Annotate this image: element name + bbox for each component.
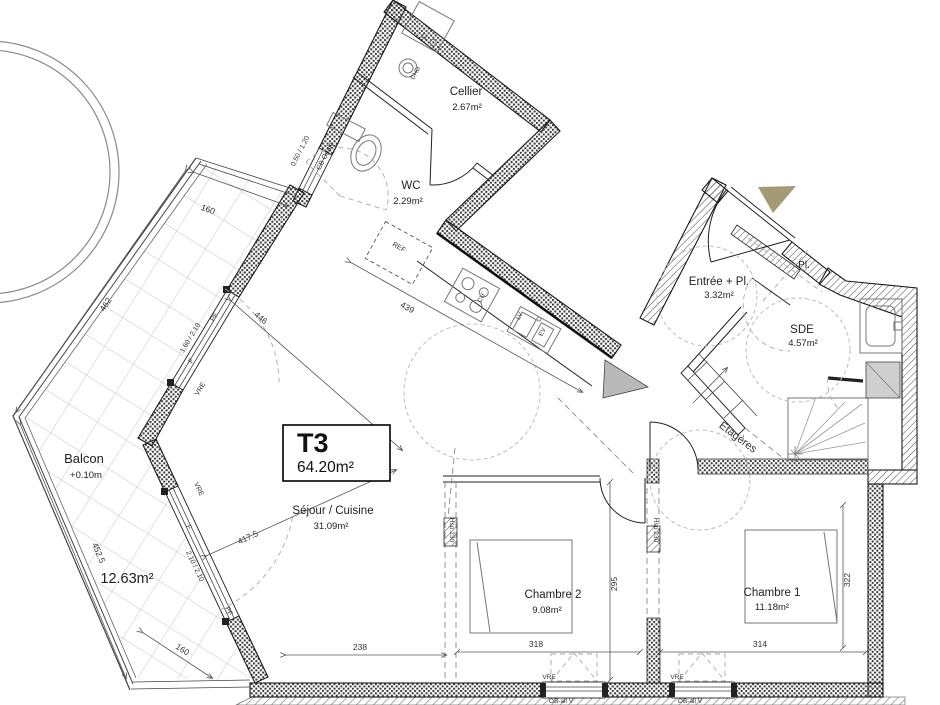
entrance-arrow bbox=[758, 186, 796, 213]
room-level-balcon: +0.10m bbox=[70, 470, 102, 481]
label-boiler: CHD bbox=[409, 65, 422, 81]
dim-sejour-sw: 417.5 bbox=[236, 528, 260, 546]
dim-chambre1-depth: 322 bbox=[842, 573, 852, 587]
label-fridge: REF bbox=[391, 241, 407, 254]
room-area-sde: 4.57m² bbox=[788, 338, 818, 349]
label-ch2-window: OB-all V bbox=[549, 698, 574, 705]
unit-label-box: T3 64.20m² bbox=[283, 425, 390, 481]
room-label-entree: Entrée + Pl. bbox=[689, 276, 749, 288]
label-sw-window-shutter: VRE bbox=[192, 481, 205, 497]
room-label-placard: Pl. bbox=[798, 260, 810, 271]
dim-chambre2-width: 318 bbox=[529, 639, 543, 649]
room-area-entree: 3.32m² bbox=[704, 290, 734, 301]
room-label-sejour: Séjour / Cuisine bbox=[292, 505, 373, 517]
dim-sejour-bottom: 238 bbox=[353, 642, 367, 652]
label-ch2-window-shutter: VRE bbox=[542, 674, 556, 681]
wall-end-shade bbox=[603, 360, 648, 398]
room-area-cellier: 2.67m² bbox=[452, 102, 482, 113]
fridge-outline bbox=[365, 222, 433, 285]
dim-chambre1-width: 314 bbox=[753, 639, 767, 649]
label-ceiling-left: Hsp 230 bbox=[448, 518, 455, 543]
room-label-chambre1: Chambre 1 bbox=[744, 587, 801, 599]
room-label-balcon: Balcon bbox=[64, 451, 104, 466]
corner-circle-decor bbox=[0, 41, 119, 303]
room-area-chambre1: 11.18m² bbox=[755, 602, 789, 613]
floor-plan-t3: T3 64.20m² Cellier 2.67m² WC 2.29m² Entr… bbox=[0, 0, 940, 705]
unit-code: T3 bbox=[297, 428, 329, 458]
room-area-balcon: 12.63m² bbox=[100, 571, 153, 587]
label-ceiling-right: Hsp 230 bbox=[652, 518, 659, 543]
unit-area: 64.20m² bbox=[297, 459, 354, 476]
room-area-chambre2: 9.08m² bbox=[532, 605, 562, 616]
label-nw-window-shutter: VRE bbox=[194, 381, 208, 397]
room-area-sejour: 31.09m² bbox=[314, 521, 349, 532]
dim-sejour-nw: 446 bbox=[252, 309, 269, 326]
label-cooktop: CU bbox=[476, 292, 487, 304]
room-label-cellier: Cellier bbox=[450, 86, 483, 98]
room-area-wc: 2.29m² bbox=[393, 196, 423, 207]
dim-kitchen-wall: 439 bbox=[399, 300, 416, 316]
room-label-wc: WC bbox=[401, 180, 420, 192]
label-ch1-window: OB-all V bbox=[678, 698, 703, 705]
room-label-chambre2: Chambre 2 bbox=[525, 589, 582, 601]
label-cellier-window-size: 0.50 / 1.20 bbox=[290, 135, 311, 168]
room-label-sde: SDE bbox=[790, 324, 814, 336]
dim-chambre2-depth: 295 bbox=[609, 577, 619, 591]
label-ch1-window-shutter: VRE bbox=[670, 674, 684, 681]
